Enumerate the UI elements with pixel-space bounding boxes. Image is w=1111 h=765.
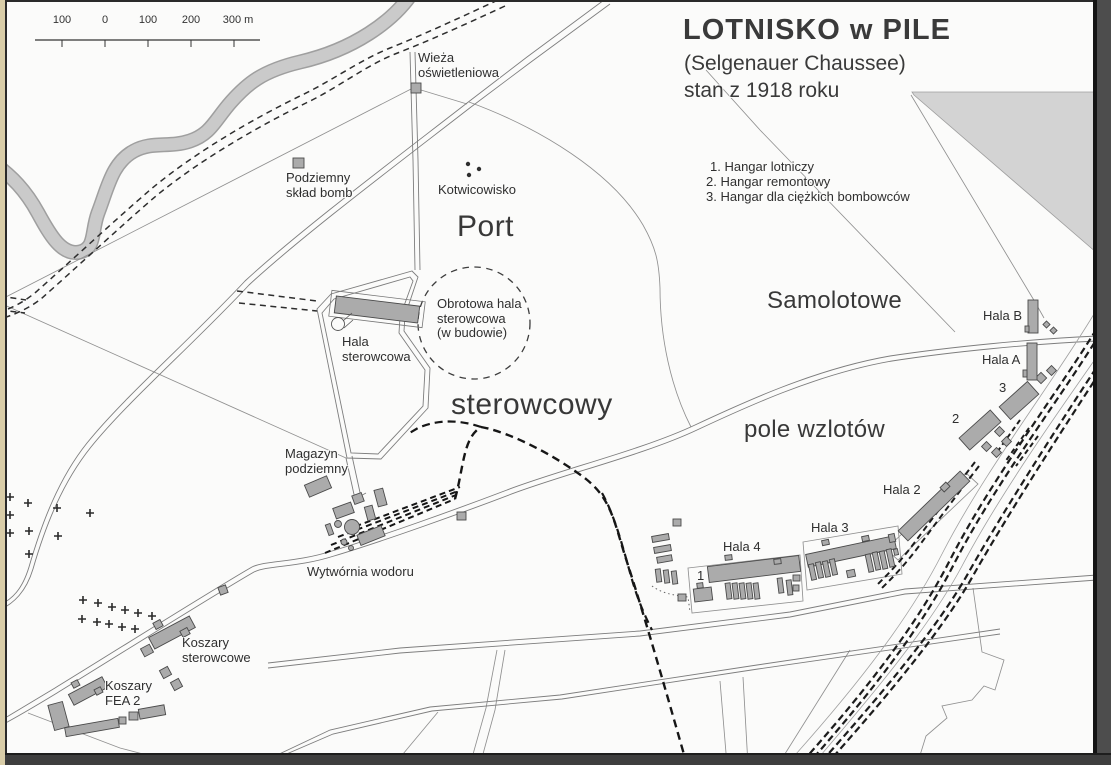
buildings-hala4-complex bbox=[693, 555, 800, 602]
label-hala-3: Hala 3 bbox=[811, 521, 849, 536]
label-bomb-store: Podziemny skład bomb bbox=[286, 171, 352, 200]
map-subtitle: (Selgenauer Chaussee) bbox=[684, 52, 906, 76]
building-light-tower bbox=[411, 83, 421, 93]
cemetery-crosses bbox=[6, 493, 156, 633]
map-border-bottom bbox=[5, 753, 1111, 765]
label-hala-b: Hala B bbox=[983, 309, 1022, 324]
label-port: Port bbox=[457, 210, 514, 244]
anchorage-dots bbox=[466, 162, 481, 177]
label-airship-barracks: Koszary sterowcowe bbox=[182, 636, 251, 665]
forest-area bbox=[912, 92, 1097, 253]
map-title: LOTNISKO w PILE bbox=[683, 14, 951, 46]
buildings-hydrogen-works bbox=[325, 488, 387, 550]
label-samolotowe: Samolotowe bbox=[767, 288, 902, 315]
building-bomb-store bbox=[293, 158, 304, 168]
building-hala-b bbox=[1028, 300, 1038, 333]
scale-label-100l: 100 bbox=[53, 14, 71, 26]
railway-main bbox=[796, 314, 1111, 765]
river bbox=[0, 0, 414, 252]
railway-dashed-river bbox=[0, 0, 505, 319]
label-light-tower: Wieża oświetleniowa bbox=[418, 51, 499, 80]
buildings-hala3-complex bbox=[806, 533, 899, 580]
building-underground-store bbox=[304, 476, 331, 497]
scale-bar bbox=[35, 40, 260, 47]
label-fea2-barracks: Koszary FEA 2 bbox=[105, 679, 152, 708]
label-rotating-hangar: Obrotowa hala sterowcowa (w budowie) bbox=[437, 297, 522, 341]
map-date-note: stan z 1918 roku bbox=[684, 79, 839, 103]
label-hangar-3: 3 bbox=[999, 381, 1006, 396]
label-airship-hall: Hala sterowcowa bbox=[342, 335, 411, 364]
legend-item-2: 2. Hangar remontowy bbox=[706, 175, 830, 190]
scale-label-0: 0 bbox=[102, 14, 108, 26]
building-repair-hangar-2 bbox=[959, 410, 1001, 450]
map-border-left bbox=[5, 0, 7, 765]
map-canvas bbox=[0, 0, 1111, 765]
label-hangar-2: 2 bbox=[952, 412, 959, 427]
legend-item-1: 1. Hangar lotniczy bbox=[710, 160, 814, 175]
building-airship-hall bbox=[334, 296, 419, 323]
label-hala-4: Hala 4 bbox=[723, 540, 761, 555]
label-hala-a: Hala A bbox=[982, 353, 1020, 368]
label-underground-store: Magazyn podziemny bbox=[285, 447, 348, 476]
label-pole-wzlotow: pole wzlotów bbox=[744, 417, 885, 444]
scale-label-100r: 100 bbox=[139, 14, 157, 26]
map-border-top bbox=[5, 0, 1111, 2]
label-hangar-1: 1 bbox=[697, 569, 704, 584]
roads bbox=[0, 0, 1097, 765]
label-hydrogen-works: Wytwórnia wodoru bbox=[307, 565, 414, 580]
scanned-map-page: { "colors":{ "paper":"#fbfbfa","ink":"#2… bbox=[0, 0, 1111, 765]
label-anchorage: Kotwicowisko bbox=[438, 183, 516, 198]
legend-item-3: 3. Hangar dla ciężkich bombowców bbox=[706, 190, 910, 205]
railway-spur bbox=[325, 421, 687, 765]
map-border-right bbox=[1093, 0, 1111, 765]
scale-label-300m: 300 m bbox=[223, 14, 254, 26]
label-hala-2: Hala 2 bbox=[883, 483, 921, 498]
scale-label-200: 200 bbox=[182, 14, 200, 26]
building-hala-a bbox=[1027, 343, 1037, 380]
label-sterowcowy: sterowcowy bbox=[451, 388, 613, 422]
